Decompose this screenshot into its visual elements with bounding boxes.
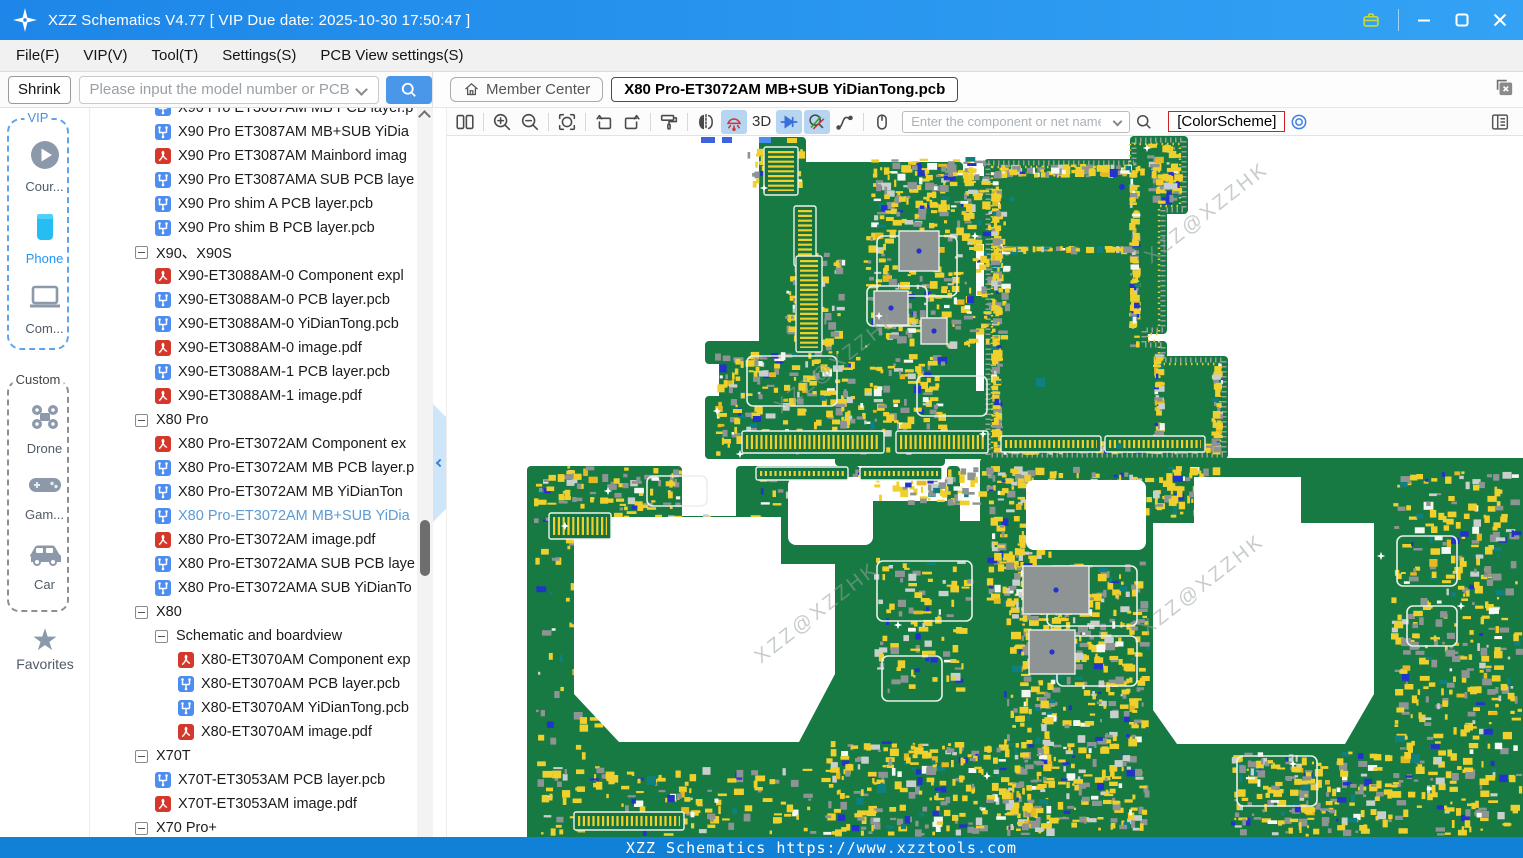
tree-item-label: X70 Pro+ — [156, 820, 217, 836]
lamp-icon[interactable] — [721, 110, 747, 134]
sidebar-item-game[interactable]: Gam... — [0, 470, 89, 522]
tree-item-label: X80 Pro — [156, 412, 208, 428]
tree-item-label: X80-ET3070AM Component exp — [201, 652, 411, 668]
tree-item[interactable]: X80-ET3070AM Component exp — [90, 648, 417, 672]
pcb-file-icon — [155, 220, 171, 236]
home-icon — [463, 81, 480, 98]
collapse-panel-handle[interactable] — [433, 404, 447, 522]
tree-item[interactable]: X90 Pro ET3087AM Mainbord imag — [90, 144, 417, 168]
tree-item[interactable]: X90 Pro shim B PCB layer.pcb — [90, 216, 417, 240]
tree-item-label: X80 — [156, 604, 182, 620]
tree-item[interactable]: X90-ET3088AM-0 Component expl — [90, 264, 417, 288]
net-search-box[interactable] — [902, 111, 1130, 133]
toolbar-row: Shrink Member Center X80 Pro-ET3072AM MB… — [0, 72, 1523, 108]
board-sub-top — [988, 140, 1224, 455]
diode-icon[interactable] — [776, 110, 802, 134]
pcb-file-icon — [155, 316, 171, 332]
tab-section: Member Center X80 Pro-ET3072AM MB+SUB Yi… — [434, 72, 1523, 108]
pcb-file-icon — [155, 556, 171, 572]
tree-item-label: X80 Pro-ET3072AM MB PCB layer.p — [178, 460, 414, 476]
pcb-file-icon — [155, 484, 171, 500]
tree-item-label: X80-ET3070AM YiDianTong.pcb — [201, 700, 409, 716]
menu-item-settings-s-[interactable]: Settings(S) — [222, 47, 296, 64]
tree-group[interactable]: X80 Pro — [90, 408, 417, 432]
pcb-file-icon — [155, 580, 171, 596]
collapse-minus-icon[interactable] — [135, 822, 148, 835]
tree-item-label: X90 Pro ET3087AM MB PCB layer.p — [178, 108, 413, 116]
tree-item-label: X80-ET3070AM PCB layer.pcb — [201, 676, 400, 692]
tree-item-label: X80 Pro-ET3072AMA SUB PCB laye — [178, 556, 415, 572]
briefcase-icon[interactable] — [1356, 5, 1386, 35]
tree-item-label: X70T-ET3053AM PCB layer.pcb — [178, 772, 385, 788]
window-title: XZZ Schematics V4.77 [ VIP Due date: 202… — [48, 12, 470, 29]
pdf-file-icon — [155, 268, 171, 284]
tree-item-label: X80 Pro-ET3072AM MB+SUB YiDia — [178, 508, 410, 524]
tree-item[interactable]: X90-ET3088AM-1 image.pdf — [90, 384, 417, 408]
tree-item-label: X90 Pro ET3087AM Mainbord imag — [178, 148, 407, 164]
tree-item[interactable]: X80 Pro-ET3072AMA SUB PCB laye — [90, 552, 417, 576]
menu-item-vip-v-[interactable]: VIP(V) — [83, 47, 127, 64]
tree-item[interactable]: X90 Pro ET3087AMA SUB PCB laye — [90, 168, 417, 192]
sidebar-item-car[interactable]: Car — [0, 540, 89, 592]
colorscheme-button[interactable]: [ColorScheme] — [1168, 111, 1285, 132]
tree-item[interactable]: X80 Pro-ET3072AM MB YiDianTon — [90, 480, 417, 504]
app-window: XZZ Schematics V4.77 [ VIP Due date: 202… — [0, 0, 1523, 858]
pcb-file-icon — [155, 124, 171, 140]
tree-item[interactable]: X80 Pro-ET3072AM image.pdf — [90, 528, 417, 552]
toolbar-separator — [585, 113, 586, 131]
3d-view-button[interactable]: 3D — [748, 113, 775, 130]
zoom-out-icon[interactable] — [517, 110, 543, 134]
menu-item-tool-t-[interactable]: Tool(T) — [152, 47, 199, 64]
toolbar-separator — [863, 113, 864, 131]
pdf-file-icon — [178, 652, 194, 668]
maximize-button[interactable] — [1447, 5, 1477, 35]
tree-item-label: X90 Pro shim A PCB layer.pcb — [178, 196, 373, 212]
tree-item[interactable]: X80-ET3070AM image.pdf — [90, 720, 417, 744]
close-all-tabs-icon[interactable] — [1493, 76, 1515, 103]
tree-group[interactable]: Schematic and boardview — [90, 624, 417, 648]
tree-item-label: X90 Pro shim B PCB layer.pcb — [178, 220, 375, 236]
favorites-label: Favorites — [0, 656, 90, 672]
sidebar-item-label: Com... — [0, 321, 89, 336]
status-footer: XZZ Schematics https://www.xzztools.com — [0, 837, 1523, 858]
tree-item[interactable]: X90-ET3088AM-0 image.pdf — [90, 336, 417, 360]
shrink-button[interactable]: Shrink — [8, 76, 71, 104]
scrollbar-thumb[interactable] — [420, 520, 430, 576]
pdf-file-icon — [155, 436, 171, 452]
search-button[interactable] — [386, 76, 432, 104]
tree-item[interactable]: X90-ET3088AM-1 PCB layer.pcb — [90, 360, 417, 384]
tree-group[interactable]: X90、X90S — [90, 240, 417, 264]
menu-item-pcb-view-settings-s-[interactable]: PCB View settings(S) — [320, 47, 463, 64]
app-logo-icon — [12, 7, 38, 33]
sidebar-item-label: Cour... — [0, 179, 89, 194]
search-section: Shrink — [0, 72, 433, 108]
sidebar-item-favorites[interactable]: ★ Favorites — [0, 626, 90, 672]
tree-item[interactable]: X90 Pro shim A PCB layer.pcb — [90, 192, 417, 216]
tree-item-label: Schematic and boardview — [176, 628, 342, 644]
toolbar-separator — [650, 113, 651, 131]
tree-item[interactable]: X80-ET3070AM YiDianTong.pcb — [90, 696, 417, 720]
pcb-file-icon — [155, 508, 171, 524]
pcb-file-icon — [178, 700, 194, 716]
mirror-icon[interactable] — [693, 110, 719, 134]
tree-item-label: X70T — [156, 748, 191, 764]
collapse-minus-icon[interactable] — [135, 606, 148, 619]
target-icon[interactable] — [1286, 110, 1312, 134]
sidebar-item-label: Car — [0, 577, 89, 592]
member-center-label: Member Center — [486, 81, 590, 98]
model-search-input[interactable] — [90, 81, 350, 98]
sidebar-item-label: Drone — [0, 441, 89, 456]
tree-item-label: X80 Pro-ET3072AM Component ex — [178, 436, 406, 452]
pcb-file-icon — [155, 292, 171, 308]
collapse-minus-icon[interactable] — [135, 750, 148, 763]
toolbar-separator — [548, 113, 549, 131]
vip-group-label: VIP — [25, 110, 52, 125]
gamepad-icon — [26, 487, 64, 504]
pdf-file-icon — [155, 340, 171, 356]
pcb-file-icon — [155, 460, 171, 476]
zoom-in-icon[interactable] — [489, 110, 515, 134]
tree-item-label: X90 Pro ET3087AM MB+SUB YiDia — [178, 124, 409, 140]
panel-list-icon[interactable] — [1487, 110, 1513, 134]
tree-item-label: X90-ET3088AM-0 Component expl — [178, 268, 404, 284]
pcb-file-icon — [155, 772, 171, 788]
pdf-file-icon — [155, 796, 171, 812]
pcb-file-icon — [155, 172, 171, 188]
file-tree: X90 Pro ET3087AM MB PCB layer.pX90 Pro E… — [90, 108, 417, 837]
collapse-minus-icon[interactable] — [135, 246, 148, 259]
tree-item-label: X80-ET3070AM image.pdf — [201, 724, 372, 740]
minimize-button[interactable] — [1409, 5, 1439, 35]
titlebar-separator — [1398, 9, 1399, 31]
rotate-left-icon[interactable] — [591, 110, 617, 134]
pcb-file-icon — [178, 676, 194, 692]
close-button[interactable] — [1485, 5, 1515, 35]
tree-scrollbar[interactable] — [417, 108, 433, 837]
pdf-file-icon — [178, 724, 194, 740]
collapse-minus-icon[interactable] — [135, 414, 148, 427]
tree-group[interactable]: X80 — [90, 600, 417, 624]
sidebar-item-computer[interactable]: Com... — [0, 280, 89, 336]
pdf-file-icon — [155, 148, 171, 164]
tree-item-label: X90-ET3088AM-0 PCB layer.pcb — [178, 292, 390, 308]
tree-item-label: X90-ET3088AM-1 image.pdf — [178, 388, 362, 404]
tree-item[interactable]: X90 Pro ET3087AM MB+SUB YiDia — [90, 120, 417, 144]
paint-roller-icon[interactable] — [656, 110, 682, 134]
tree-item[interactable]: X90-ET3088AM-0 YiDianTong.pcb — [90, 312, 417, 336]
laptop-icon — [27, 301, 63, 318]
left-sidebar: VIP Custom Cour...PhoneCom...DroneGam...… — [0, 108, 90, 837]
tree-item[interactable]: X80 Pro-ET3072AM Component ex — [90, 432, 417, 456]
pcb-viewer-panel: 3D [ColorScheme] — [446, 108, 1523, 837]
split-view-icon[interactable] — [452, 110, 478, 134]
tree-item[interactable]: X80 Pro-ET3072AM MB+SUB YiDia — [90, 504, 417, 528]
tree-item-label: X90 Pro ET3087AMA SUB PCB laye — [178, 172, 414, 188]
net-search-input[interactable] — [911, 114, 1101, 129]
tree-item-label: X90-ET3088AM-1 PCB layer.pcb — [178, 364, 390, 380]
collapse-minus-icon[interactable] — [155, 630, 168, 643]
member-center-button[interactable]: Member Center — [450, 77, 603, 102]
sidebar-item-phone[interactable]: Phone — [0, 210, 89, 266]
phone-icon — [28, 231, 62, 248]
car-icon — [26, 557, 64, 574]
tree-item[interactable]: X70T-ET3053AM PCB layer.pcb — [90, 768, 417, 792]
chevron-down-icon[interactable] — [355, 83, 368, 96]
play-circle-icon — [28, 159, 62, 176]
tree-item[interactable]: X80-ET3070AM PCB layer.pcb — [90, 672, 417, 696]
sidebar-item-course[interactable]: Cour... — [0, 138, 89, 194]
main-area: VIP Custom Cour...PhoneCom...DroneGam...… — [0, 108, 1523, 837]
tree-item[interactable]: X90-ET3088AM-0 PCB layer.pcb — [90, 288, 417, 312]
pcb-file-icon — [155, 196, 171, 212]
tree-item[interactable]: X80 Pro-ET3072AM MB PCB layer.p — [90, 456, 417, 480]
tree-item[interactable]: X70T-ET3053AM image.pdf — [90, 792, 417, 816]
tree-item-label: X90、X90S — [156, 242, 232, 263]
sidebar-item-label: Gam... — [0, 507, 89, 522]
menu-bar: File(F)VIP(V)Tool(T)Settings(S)PCB View … — [0, 40, 1523, 72]
chevron-down-icon[interactable] — [1113, 116, 1123, 126]
pdf-file-icon — [155, 388, 171, 404]
pcb-toolbar: 3D [ColorScheme] — [447, 108, 1523, 136]
active-tab[interactable]: X80 Pro-ET3072AM MB+SUB YiDianTong.pcb — [611, 77, 958, 102]
sidebar-item-drone[interactable]: Drone — [0, 400, 89, 456]
title-bar: XZZ Schematics V4.77 [ VIP Due date: 202… — [0, 0, 1523, 40]
connector — [860, 467, 942, 480]
tree-item-label: X90-ET3088AM-0 YiDianTong.pcb — [178, 316, 399, 332]
pcb-file-icon — [155, 364, 171, 380]
tree-item-label: X80 Pro-ET3072AMA SUB YiDianTo — [178, 580, 412, 596]
magnifier-icon — [399, 80, 419, 100]
custom-group-label: Custom — [13, 372, 64, 387]
toolbar-separator — [687, 113, 688, 131]
tree-item-label: X80 Pro-ET3072AM MB YiDianTon — [178, 484, 403, 500]
mouse-icon[interactable] — [869, 110, 895, 134]
model-search-box[interactable] — [79, 76, 379, 104]
probe-icon[interactable] — [804, 110, 830, 134]
tree-group[interactable]: X70T — [90, 744, 417, 768]
rotate-icon[interactable] — [554, 110, 580, 134]
pcb-file-icon — [155, 108, 171, 116]
rotate-right-icon[interactable] — [619, 110, 645, 134]
tree-item[interactable]: X80 Pro-ET3072AMA SUB YiDianTo — [90, 576, 417, 600]
tree-item-label: X90-ET3088AM-0 image.pdf — [178, 340, 362, 356]
tree-item[interactable]: X90 Pro ET3087AM MB PCB layer.p — [90, 108, 417, 120]
star-icon: ★ — [0, 626, 90, 656]
footer-link[interactable]: XZZ Schematics https://www.xzztools.com — [626, 839, 1017, 857]
tree-item-label: X80 Pro-ET3072AM image.pdf — [178, 532, 375, 548]
sidebar-item-label: Phone — [0, 251, 89, 266]
toolbar-separator — [483, 113, 484, 131]
net-search-icon[interactable] — [1131, 110, 1157, 134]
menu-item-file-f-[interactable]: File(F) — [16, 47, 59, 64]
tree-group[interactable]: X70 Pro+ — [90, 816, 417, 837]
connector — [574, 812, 684, 830]
scroll-up-icon[interactable] — [418, 110, 431, 123]
drone-icon — [27, 421, 63, 438]
pdf-file-icon — [155, 532, 171, 548]
tree-item-label: X70T-ET3053AM image.pdf — [178, 796, 357, 812]
curve-icon[interactable] — [832, 110, 858, 134]
pcb-canvas[interactable]: XZZ@XZZHK XZZ@XZZHK XZZ@XZZHK XZZ@XZZHK — [447, 136, 1523, 837]
pcb-board-view[interactable]: XZZ@XZZHK XZZ@XZZHK XZZ@XZZHK XZZ@XZZHK — [447, 136, 1523, 837]
